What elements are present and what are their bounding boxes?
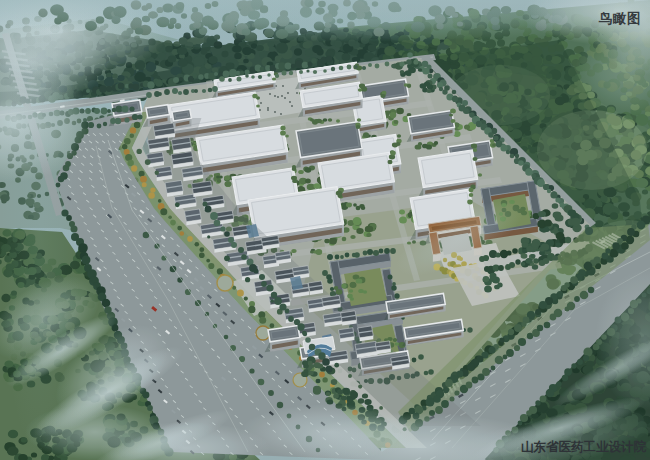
svg-text:山东省医药工业设计院: 山东省医药工业设计院 [521, 439, 647, 454]
svg-text:鸟瞰图: 鸟瞰图 [598, 11, 641, 26]
